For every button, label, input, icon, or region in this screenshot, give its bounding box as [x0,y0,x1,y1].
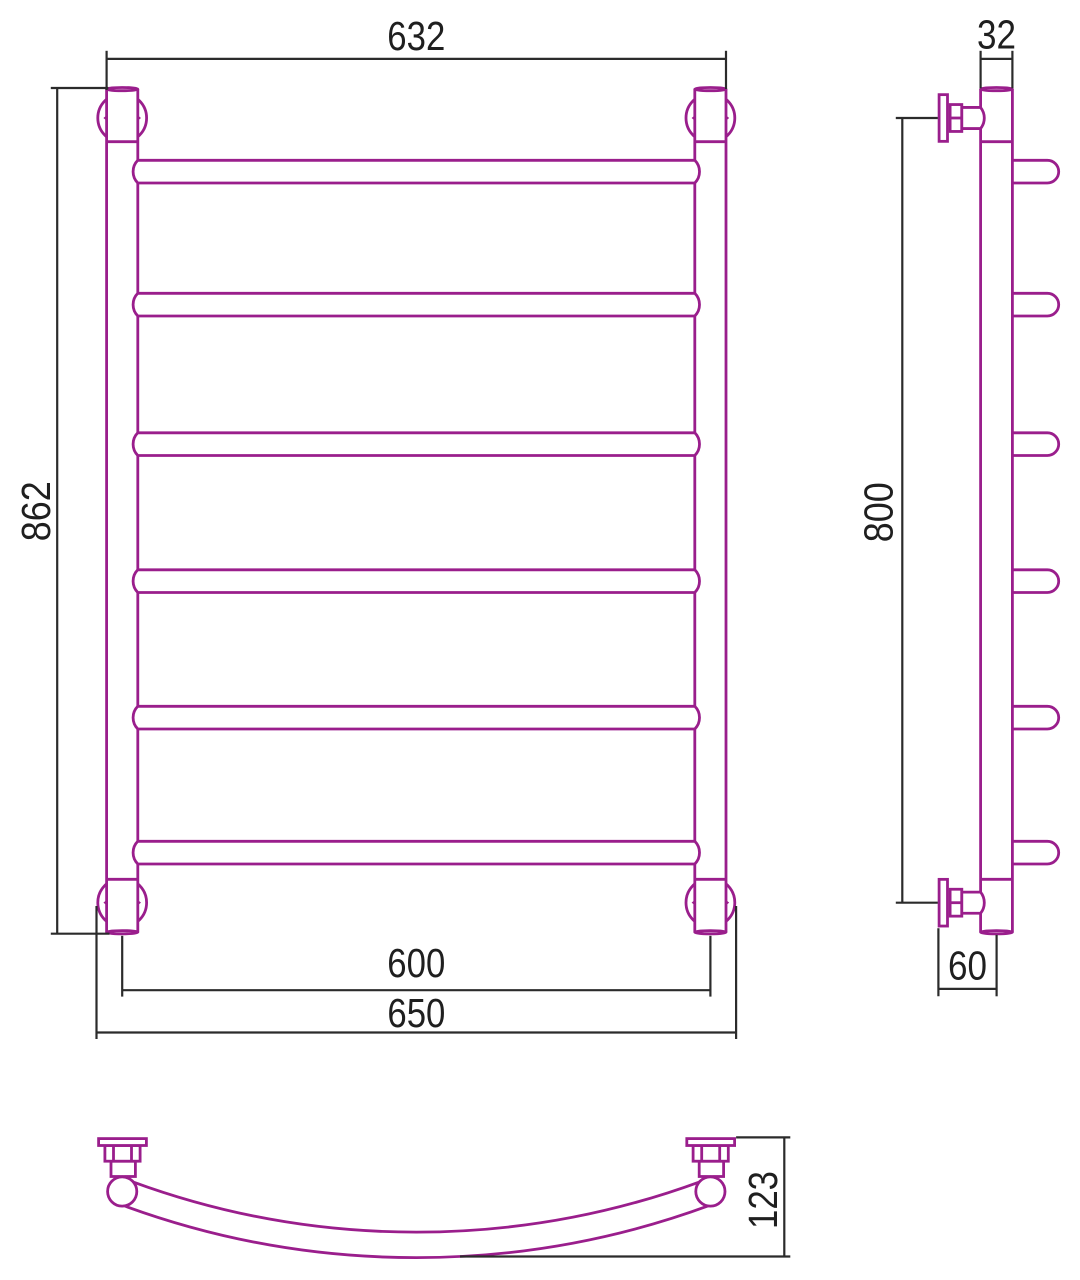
svg-text:600: 600 [387,940,445,986]
svg-text:800: 800 [856,482,902,542]
svg-text:650: 650 [387,990,445,1036]
svg-text:632: 632 [387,13,445,59]
svg-text:32: 32 [977,11,1016,57]
svg-text:123: 123 [740,1171,786,1229]
svg-text:862: 862 [13,481,59,541]
svg-text:60: 60 [948,943,987,989]
